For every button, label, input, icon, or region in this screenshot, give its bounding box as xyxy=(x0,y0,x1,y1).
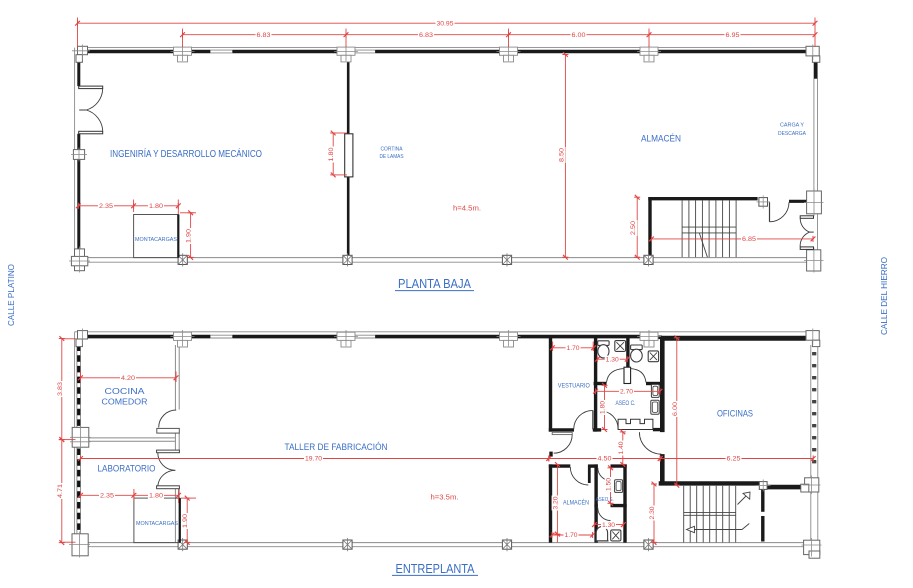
svg-text:CALLE DEL HIERRO: CALLE DEL HIERRO xyxy=(879,257,889,335)
svg-text:1.70: 1.70 xyxy=(565,532,579,539)
svg-text:1.80: 1.80 xyxy=(328,147,335,162)
svg-text:1.40: 1.40 xyxy=(618,441,625,455)
svg-text:4.50: 4.50 xyxy=(598,456,613,463)
svg-text:1.80: 1.80 xyxy=(149,493,164,500)
svg-text:h=3.5m.: h=3.5m. xyxy=(431,492,459,501)
svg-text:CARGA Y: CARGA Y xyxy=(780,123,804,129)
svg-text:8.50: 8.50 xyxy=(558,148,565,162)
svg-text:CORTINA: CORTINA xyxy=(381,147,404,153)
svg-text:2.30: 2.30 xyxy=(649,506,656,520)
svg-text:1.30: 1.30 xyxy=(602,522,616,529)
svg-text:DESCARGA: DESCARGA xyxy=(778,131,806,137)
svg-text:MONTACARGAS: MONTACARGAS xyxy=(136,521,178,527)
svg-text:4.20: 4.20 xyxy=(121,375,136,382)
svg-text:6.83: 6.83 xyxy=(419,32,433,39)
svg-text:3.83: 3.83 xyxy=(57,381,64,396)
svg-text:COCINA: COCINA xyxy=(105,386,145,396)
svg-text:CALLE PLATINO: CALLE PLATINO xyxy=(6,264,16,326)
svg-text:LABORATORIO: LABORATORIO xyxy=(98,464,156,474)
svg-text:6.85: 6.85 xyxy=(742,236,757,243)
svg-text:ENTREPLANTA: ENTREPLANTA xyxy=(396,561,475,576)
svg-text:DE LAMAS: DE LAMAS xyxy=(380,154,404,160)
svg-text:6.25: 6.25 xyxy=(727,456,742,463)
svg-text:2.70: 2.70 xyxy=(620,389,634,396)
svg-text:1.90: 1.90 xyxy=(182,513,189,528)
svg-text:VESTUARIO: VESTUARIO xyxy=(558,382,590,389)
svg-text:1.80: 1.80 xyxy=(600,400,607,414)
svg-text:TALLER DE FABRICACIÓN: TALLER DE FABRICACIÓN xyxy=(285,442,388,453)
svg-text:2.35: 2.35 xyxy=(100,493,115,500)
svg-text:MONTACARGAS: MONTACARGAS xyxy=(135,237,177,243)
svg-text:PLANTA BAJA: PLANTA BAJA xyxy=(398,276,471,291)
svg-text:h=4.5m.: h=4.5m. xyxy=(453,204,481,213)
svg-text:1.80: 1.80 xyxy=(149,203,164,210)
svg-text:ALMACÉN: ALMACÉN xyxy=(563,500,589,507)
svg-text:1.50: 1.50 xyxy=(606,477,613,491)
svg-text:6.00: 6.00 xyxy=(672,401,679,416)
svg-text:COMEDOR: COMEDOR xyxy=(102,397,148,407)
svg-text:4.71: 4.71 xyxy=(57,483,64,498)
svg-text:30.95: 30.95 xyxy=(437,20,454,27)
svg-text:3.20: 3.20 xyxy=(552,496,559,510)
svg-text:19.70: 19.70 xyxy=(305,456,323,463)
svg-text:OFICINAS: OFICINAS xyxy=(717,408,753,418)
svg-text:ALMACÉN: ALMACÉN xyxy=(641,134,681,144)
svg-text:INGENIRÍA Y DESARROLLO MECÁNIC: INGENIRÍA Y DESARROLLO MECÁNICO xyxy=(110,147,262,160)
svg-text:ASEO C.: ASEO C. xyxy=(616,400,636,407)
svg-text:ASEO S.: ASEO S. xyxy=(596,497,614,503)
svg-text:6.00: 6.00 xyxy=(572,32,586,39)
svg-text:1.30: 1.30 xyxy=(606,356,620,363)
svg-text:6.83: 6.83 xyxy=(257,32,271,39)
svg-text:1.70: 1.70 xyxy=(567,345,581,352)
svg-text:1.90: 1.90 xyxy=(186,228,193,243)
svg-text:6.95: 6.95 xyxy=(726,32,740,39)
svg-text:2.50: 2.50 xyxy=(630,220,637,235)
svg-text:2.35: 2.35 xyxy=(99,203,114,210)
